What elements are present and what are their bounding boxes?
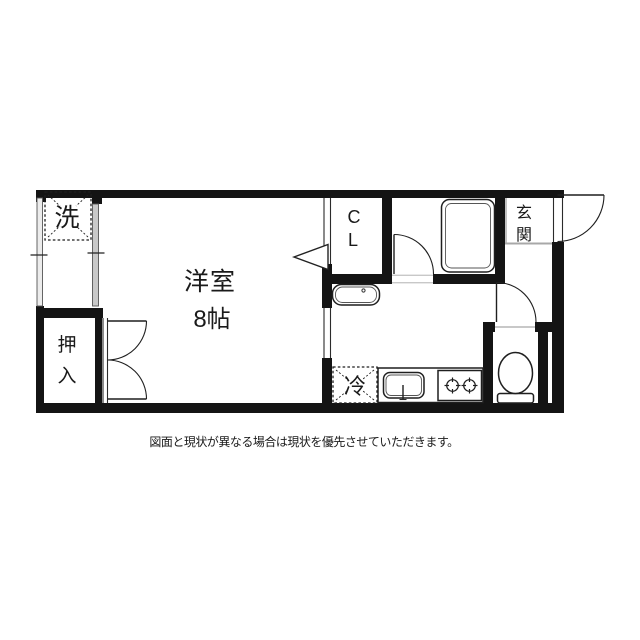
- wall-bath-right: [495, 198, 505, 284]
- wall-toilet-right: [538, 332, 548, 403]
- kitchen-counter: [378, 368, 483, 403]
- toilet: [498, 353, 534, 404]
- oshiire-door-arc-bottom: [108, 360, 147, 399]
- bathroom-door: [392, 235, 434, 285]
- entrance-door: [552, 195, 604, 242]
- closet-label-l: L: [348, 230, 358, 250]
- oshiire-double-door: [103, 318, 147, 403]
- washbasin: [333, 285, 380, 306]
- oshiire-label-char1: 押: [57, 334, 76, 356]
- wall-toilet-top-left: [483, 322, 495, 332]
- wall-left-lower: [36, 306, 44, 413]
- floorplan-page: 洋室 8帖 C L 玄 関 押 入 洗 冷 図面と現状が異なる場合は現状を優先さ…: [0, 0, 640, 640]
- toilet-bowl: [499, 353, 533, 394]
- toilet-door: [495, 283, 536, 333]
- room-name-label: 洋室: [184, 268, 236, 296]
- entrance-label-char1: 玄: [516, 204, 532, 222]
- wall-toilet-top-right: [535, 322, 553, 332]
- wall-laundry-right-stub: [92, 198, 102, 204]
- room-size-label: 8帖: [193, 306, 230, 333]
- wall-bath-bottom: [433, 274, 505, 284]
- fixtures: [45, 192, 534, 403]
- kitchen-sink: [384, 373, 425, 399]
- closet-label-c: C: [348, 207, 361, 227]
- washer-label: 洗: [54, 204, 79, 232]
- bathtub: [442, 200, 495, 273]
- disclaimer-caption: 図面と現状が異なる場合は現状を優先させていただきます。: [149, 434, 458, 449]
- entrance-door-arc: [558, 195, 605, 242]
- entrance-label-char2: 関: [516, 227, 532, 244]
- window-left: [37, 198, 43, 306]
- wall-closet-bath: [382, 198, 392, 284]
- fridge-label: 冷: [344, 374, 366, 399]
- toilet-tank-base: [498, 394, 534, 404]
- wall-divider-low: [322, 358, 332, 403]
- wall-top: [36, 190, 564, 198]
- wall-divider-mid: [322, 264, 332, 308]
- bathroom-door-arc: [394, 235, 434, 275]
- oshiire-door-arc-top: [108, 321, 147, 360]
- washbasin-faucet-dot: [362, 289, 365, 292]
- oshiire-label-char2: 入: [57, 366, 76, 387]
- window-partition-right: [93, 204, 99, 306]
- wall-toilet-left: [483, 322, 493, 413]
- wall-right: [552, 242, 564, 413]
- wall-oshiire-right: [95, 308, 102, 413]
- floorplan-drawing: 洋室 8帖 C L 玄 関 押 入 洗 冷 図面と現状が異なる場合は現状を優先さ…: [0, 0, 640, 640]
- opening-direction-triangle: [294, 245, 328, 270]
- wall-oshiire-top: [36, 308, 103, 318]
- bathtub-outer: [442, 200, 495, 273]
- toilet-door-arc: [497, 283, 537, 323]
- wall-closet-bottom: [322, 274, 392, 284]
